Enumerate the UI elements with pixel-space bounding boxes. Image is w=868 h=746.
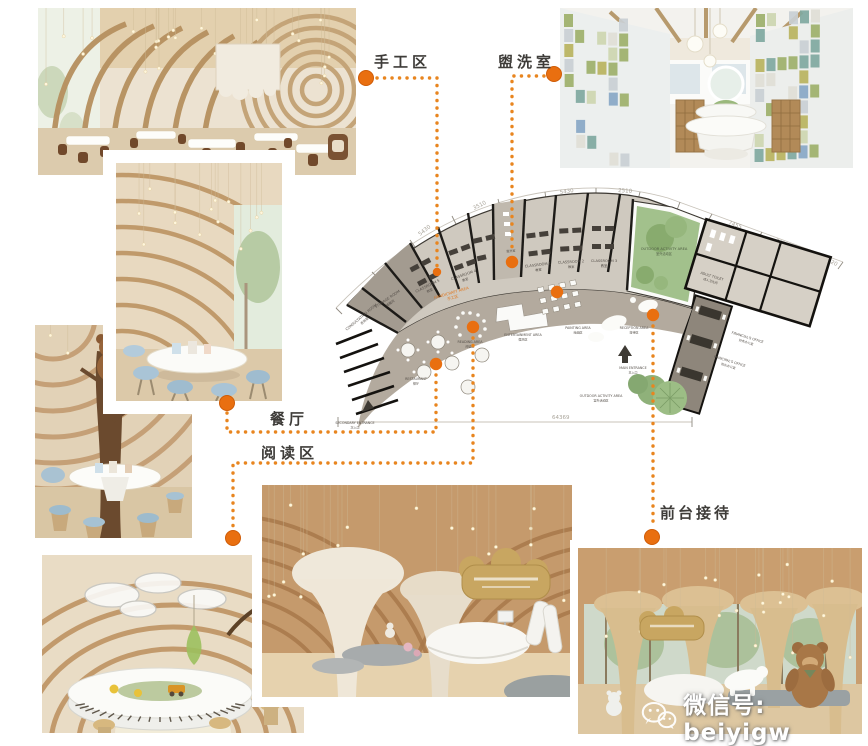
watermark: 微信号: beiyigw (640, 686, 868, 746)
reading-callout-dot (226, 531, 241, 546)
plan-reading-dot (467, 321, 479, 333)
presentation-canvas: 5430 3510 5430 2510 7455 7455 4420 64369 (0, 0, 868, 746)
plan-restaurant-dot (430, 358, 442, 370)
plan-reception-dot (647, 309, 659, 321)
handicraft-callout-line (377, 78, 437, 268)
plan-painting-dot (551, 286, 563, 298)
wechat-icon (640, 699, 677, 733)
callout-label-washroom: 盥洗室 (498, 51, 555, 72)
callout-label-dining: 餐厅 (270, 408, 308, 429)
handicraft-callout-dot (359, 71, 374, 86)
callout-label-reception: 前台接待 (660, 502, 732, 523)
plan-handicraft-dot (433, 268, 441, 276)
washroom-callout-line (512, 76, 544, 252)
watermark-text: 微信号: beiyigw (683, 686, 868, 746)
dining-callout-line (227, 374, 436, 432)
plan-washroom-dot (506, 256, 518, 268)
callout-label-reading: 阅读区 (261, 442, 318, 463)
reception-callout-dot (645, 530, 660, 545)
dining-callout-dot (220, 396, 235, 411)
callout-lines (0, 0, 868, 746)
callout-label-handicraft: 手工区 (374, 51, 431, 72)
